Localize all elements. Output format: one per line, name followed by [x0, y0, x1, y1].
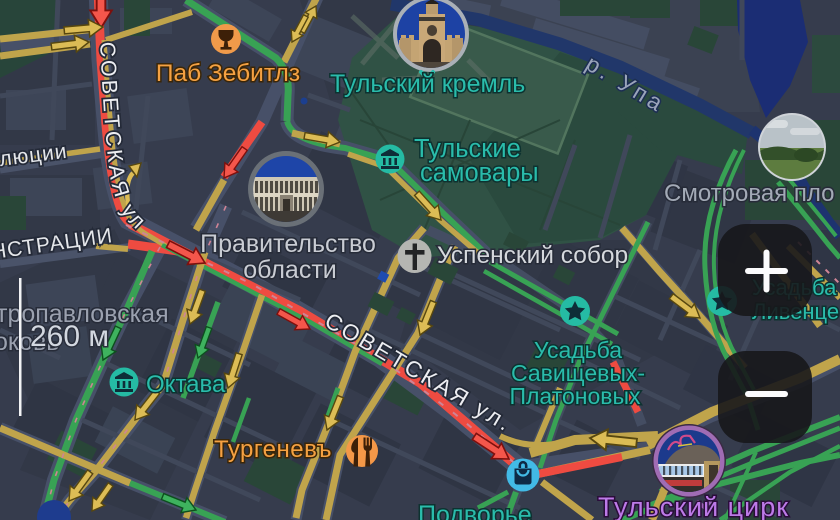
- svg-text:области: области: [243, 256, 337, 284]
- svg-text:Платоновых: Платоновых: [509, 383, 641, 409]
- svg-text:Подворье: Подворье: [418, 501, 532, 520]
- svg-text:Паб Зебитлз: Паб Зебитлз: [156, 60, 300, 87]
- svg-text:Тургеневъ: Тургеневъ: [214, 436, 332, 463]
- svg-text:Тульский кремль: Тульский кремль: [330, 70, 525, 98]
- svg-text:Успенский собор: Успенский собор: [437, 242, 628, 269]
- svg-text:260 м: 260 м: [30, 320, 109, 353]
- svg-text:Тульский цирк: Тульский цирк: [598, 492, 789, 520]
- svg-text:Смотровая пло: Смотровая пло: [664, 180, 834, 207]
- svg-text:Октава: Октава: [146, 371, 226, 398]
- svg-text:Правительство: Правительство: [200, 230, 376, 258]
- svg-text:самовары: самовары: [420, 159, 539, 187]
